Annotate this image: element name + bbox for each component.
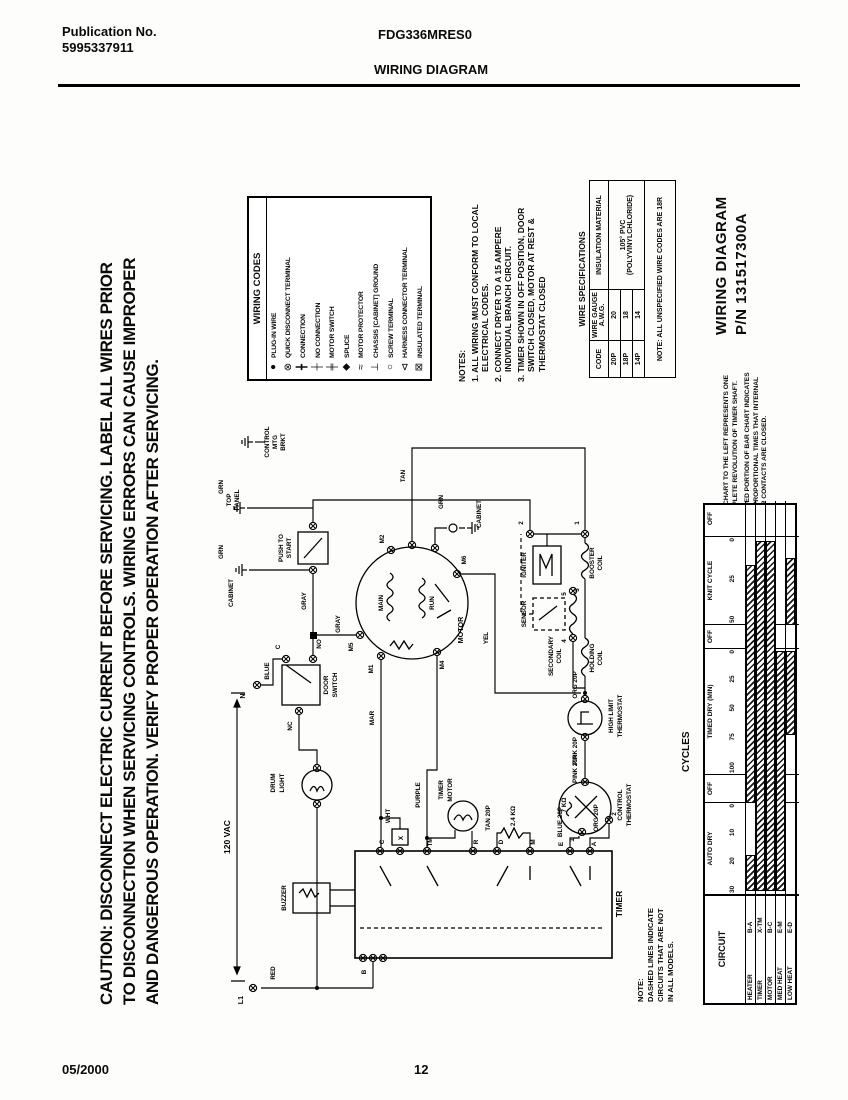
timer-terminal-label: M [530, 839, 537, 844]
model-number: FDG336MRES0 [378, 27, 472, 43]
sensor [533, 598, 565, 630]
motor-protector-icon: ≈ [357, 358, 367, 376]
run-winding-label: RUN [429, 596, 436, 610]
wire-blue20-label: BLUE 20P [557, 807, 564, 837]
timer-motor [448, 801, 478, 831]
diagram-part-number: WIRING DIAGRAM P/N 131517300A [712, 140, 765, 335]
wire-mar-label: MAR [369, 710, 376, 725]
wire-pink-label: PINK 20P [572, 755, 579, 783]
cycle-bar-segment [776, 651, 785, 891]
footer-page-number: 12 [414, 1062, 428, 1077]
drum-light-label: DRUM [270, 774, 277, 793]
col-gauge: WIRE GAUGE A.W.G. [590, 290, 609, 341]
dashed-wires [360, 534, 605, 928]
cycle-tick: 0 [729, 804, 736, 808]
bar-note-line: COMPLETE REVOLUTION OF TIMER SHAFT. [732, 376, 741, 521]
cycle-tick: 75 [729, 733, 736, 740]
drum-light-label: LIGHT [279, 773, 286, 792]
cycle-circuit-code: B-C [767, 922, 774, 933]
wire-specs-note: NOTE: ALL UNSPECIFIED WIRE CODES ARE 18R [645, 181, 676, 378]
legend-item: ≈MOTOR PROTECTOR [355, 198, 370, 379]
wire-specifications-title: WIRE SPECIFICATIONS [577, 180, 587, 378]
cycle-tick: 30 [729, 886, 736, 893]
cycle-tick: 25 [729, 675, 736, 682]
door-switch-label: SWITCH [332, 672, 339, 697]
holding-coil-label: COIL [597, 650, 604, 665]
timer-terminal-label: C [379, 839, 386, 844]
wire-red-label: RED [270, 966, 277, 980]
caution-line: TO DISCONNECTION WHEN SERVICING CONTROLS… [118, 330, 141, 1005]
timer-terminal-label: TM [427, 837, 434, 846]
bar-chart-note: BAR CHART TO THE LEFT REPRESENTS ONE COM… [723, 376, 797, 521]
cycle-ticks: 50250 [729, 538, 736, 623]
motor-label: MOTOR [456, 616, 465, 643]
caution-line: CAUTION: DISCONNECT ELECTRIC CURRENT BEF… [95, 330, 118, 1005]
legend-item-label: NO CONNECTION [315, 303, 322, 358]
wire-yel-label: YEL [483, 632, 490, 644]
wiring-diagram-page: Publication No. 5995337911 FDG336MRES0 W… [0, 0, 848, 1100]
cycle-tick: 0 [729, 538, 736, 542]
sensor-label: SENSOR [521, 600, 528, 627]
notes-block: NOTES: 1. ALL WIRING MUST CONFORM TO LOC… [457, 188, 585, 382]
timer-terminal-label: A [591, 841, 598, 846]
cycle-bar-segment [766, 541, 775, 891]
publication-label: Publication No. [62, 24, 157, 40]
cell-gauge: 14 [633, 290, 645, 341]
timer-terminal-label: R [473, 839, 480, 844]
timer-motor-label: MOTOR [447, 778, 454, 802]
buzzer [293, 883, 330, 913]
cycle-row: TIMERX-TM [755, 501, 765, 1003]
ctrl-terminal-2-label: 2 [611, 812, 618, 816]
valve-terminal-4-label: 4 [561, 639, 568, 643]
booster-coil-label: COIL [597, 555, 604, 570]
diagram-title-line: WIRING DIAGRAM [712, 140, 732, 335]
legend-item-label: QUICK DISCONNECT TERMINAL [285, 257, 292, 358]
cell-code: 20P [609, 341, 621, 378]
cycle-tick: 25 [729, 575, 736, 582]
insulated-terminal-icon: ⊠ [415, 358, 425, 376]
wire-specifications: WIRE SPECIFICATIONS CODE WIRE GAUGE A.W.… [577, 180, 712, 378]
col-insulation: INSULATION MATERIAL [590, 181, 609, 290]
wire-grn-label: GRN [438, 495, 445, 509]
door-switch-label: DOOR [323, 675, 330, 694]
valve-terminal-3-label: 3 [574, 588, 581, 592]
cycle-row: MOTORB-C [765, 501, 775, 1003]
terminal-c-label: C [275, 644, 282, 649]
main-winding-label: MAIN [378, 595, 385, 612]
cycle-ticks: 1007550250 [729, 650, 736, 773]
harness-connector-terminal-icon: ⊲ [401, 358, 411, 376]
note-item: 2. CONNECT DRYER TO A 15 AMPERE INDIVIDU… [493, 188, 514, 382]
supply-voltage-label: 120 VAC [222, 820, 232, 854]
top-panel-label: TOP [226, 494, 233, 507]
top-panel-label: PANEL [234, 489, 241, 510]
wires [247, 442, 609, 988]
legend-item-label: CHASSIS [CABINET] GROUND [373, 264, 380, 358]
cycle-bar-segment [746, 565, 755, 803]
footer-date: 05/2000 [62, 1062, 109, 1077]
notes-title: NOTES: [457, 188, 468, 382]
legend-item: ┼NO CONNECTION [311, 198, 326, 379]
cycle-circuit-name: TIMER [757, 980, 764, 1000]
cycle-bar-segment [756, 541, 765, 891]
note-item: 3. TIMER SHOWN IN OFF POSITION, DOOR SWI… [516, 188, 548, 382]
legend-item: ⊠INSULATED TERMINAL [413, 198, 428, 379]
terminal-n-label: N [238, 693, 247, 698]
timer-motor-label: TIMER [438, 780, 445, 800]
wire-grn-label: GRN [218, 480, 225, 494]
igniter-label: IGNITER [521, 552, 528, 578]
connection-icon: ╋ [298, 358, 308, 376]
terminal-nc-label: NC [287, 721, 294, 731]
cycle-circuit-code: B-A [747, 922, 754, 933]
legend-item-label: INSULATED TERMINAL [417, 286, 424, 358]
cell-gauge: 20 [609, 290, 621, 341]
wire-grn-label: GRN [218, 545, 225, 559]
timer-label: TIMER [614, 891, 624, 917]
no-connection-icon: ┼ [313, 358, 323, 376]
legend-item: ⊲HARNESS CONNECTOR TERMINAL [398, 198, 413, 379]
circuit-header: CIRCUIT [717, 901, 727, 997]
terminal-no-label: NO [316, 639, 323, 649]
wire-tan20-label: TAN 20P [485, 805, 492, 830]
valve-terminal-5-label: 5 [561, 592, 568, 596]
valve-terminal-1-label: 1 [574, 521, 581, 525]
col-code: CODE [590, 341, 609, 378]
wiring-codes-title: WIRING CODES [249, 198, 267, 379]
control-bracket-ground-icon [242, 436, 253, 448]
resistor-2-4k [501, 828, 526, 838]
secondary-coil-label: COIL [556, 648, 563, 663]
page-title: WIRING DIAGRAM [374, 62, 488, 78]
bar-note-line: THE PROPORTIONAL TIMES THAT INTERNAL [753, 376, 762, 521]
legend-item-label: MOTOR PROTECTOR [358, 291, 365, 358]
cycle-circuit-name: MED HEAT [777, 967, 784, 1000]
ctrl-terminal-1-label: 1 [569, 838, 576, 842]
wire-wht-label: WHT [385, 809, 392, 823]
note-item: 1. ALL WIRING MUST CONFORM TO LOCAL ELEC… [470, 188, 491, 382]
timer-terminal-label: D [498, 839, 505, 844]
vac-dimension [231, 693, 245, 981]
motor [356, 547, 468, 659]
cycle-tick: 20 [729, 857, 736, 864]
secondary-coil-label: SECONDARY [548, 635, 555, 676]
legend-item: ╪MOTOR SWITCH [325, 198, 340, 379]
cabinet-label: CABINET [476, 500, 483, 528]
bar-note-line: BAR CHART TO THE LEFT REPRESENTS ONE [723, 376, 732, 521]
wire-org20-label: ORG 20P [593, 804, 600, 831]
buzzer-label: BUZZER [281, 885, 288, 911]
wire-gray-label: GRAY [301, 591, 308, 609]
caution-line: AND DANGEROUS OPERATION. VERIFY PROPER O… [141, 330, 164, 1005]
drum-light [302, 770, 332, 800]
run-winding [419, 578, 425, 618]
legend-item: ●PLUG-IN WIRE [267, 198, 282, 379]
motor-switch-icon: ╪ [328, 358, 338, 376]
wire-org-label: ORG 20P [572, 671, 579, 698]
wire-tan-label: TAN [400, 469, 407, 482]
cabinet-ground-label: CABINET [228, 579, 235, 607]
motor-terminal-label: M4 [439, 660, 446, 669]
control-thermostat-label: THERMOSTAT [626, 783, 633, 826]
holding-coil-label: HOLDING [589, 643, 596, 672]
wire-blue-label: BLUE [264, 662, 271, 679]
push-to-start-label: PUSH TO [278, 534, 285, 562]
resistor-24k-label: 2.4 KΩ [510, 806, 517, 826]
diagram-pn-line: P/N 131517300A [732, 140, 752, 335]
high-limit-thermostat [568, 701, 602, 735]
legend-item-label: PLUG-IN WIRE [271, 313, 278, 358]
legend-item-label: SPLICE [344, 335, 351, 358]
wire-purple-label: PURPLE [415, 782, 422, 808]
bar-note-line: SHADED PORTION OF BAR CHART INDICATES [744, 376, 753, 521]
cycle-ticks: 3020100 [729, 804, 736, 893]
cycle-circuit-name: HEATER [747, 974, 754, 1000]
cabinet-ground-icon [236, 564, 247, 576]
schematic-labels: N L1 120 VAC RED BLUE GRN GRN GRN TOP PA… [218, 426, 633, 1004]
control-thermostat-label: CONTROL [617, 789, 624, 820]
cycles-chart: CIRCUIT AUTO DRY3020100OFFTIMED DRY (MIN… [703, 503, 797, 1005]
chassis-cabinet-ground-icon: ⊥ [371, 358, 381, 376]
wire-specifications-table: CODE WIRE GAUGE A.W.G. INSULATION MATERI… [589, 180, 676, 378]
high-limit-label: THERMOSTAT [617, 694, 624, 737]
motor-protector [390, 641, 413, 649]
cycle-tick: 50 [729, 616, 736, 623]
legend-item-label: MOTOR SWITCH [329, 307, 336, 358]
legend-item: ○SCREW TERMINAL [384, 198, 399, 379]
timer-terminal-label: E [558, 842, 565, 846]
plug-in-wire-icon: ● [269, 358, 279, 376]
quick-disconnect-terminal-icon: ⊗ [284, 358, 294, 376]
legend-item-label: SCREW TERMINAL [388, 298, 395, 358]
cycle-bar-segment [746, 855, 755, 891]
bar-note-line: TIMER CONTACTS ARE CLOSED. [761, 376, 770, 521]
timer [355, 851, 612, 958]
wiring-codes-legend: WIRING CODES ●PLUG-IN WIRE⊗QUICK DISCONN… [247, 196, 432, 381]
door-switch [282, 665, 320, 705]
legend-item-label: CONNECTION [300, 314, 307, 358]
splice-icon: ◆ [342, 358, 352, 376]
legend-item: ⊥CHASSIS [CABINET] GROUND [369, 198, 384, 379]
screw-terminal-icon: ○ [386, 358, 396, 376]
valve-terminal-2-label: 2 [518, 521, 525, 525]
cycle-tick: 50 [729, 704, 736, 711]
control-mtg-brkt-label: CONTROL [264, 426, 271, 457]
timer-terminal-label: X [398, 835, 405, 840]
motor-terminal-label: M6 [461, 555, 468, 564]
main-winding [387, 573, 393, 621]
cycle-circuit-name: MOTOR [767, 976, 774, 1000]
motor-terminal-label: M2 [379, 534, 386, 543]
secondary-coil [570, 594, 577, 634]
cycle-row: MED HEATE-M [775, 501, 785, 1003]
holding-coil [582, 638, 589, 676]
booster-coil [582, 543, 589, 579]
notes-items: 1. ALL WIRING MUST CONFORM TO LOCAL ELEC… [470, 188, 548, 382]
caution-text: CAUTION: DISCONNECT ELECTRIC CURRENT BEF… [95, 330, 180, 1005]
cycle-tick: 0 [729, 650, 736, 654]
legend-item: ╋CONNECTION [296, 198, 311, 379]
motor-terminal-label: M5 [348, 642, 355, 651]
screw-terminal [449, 524, 457, 532]
cell-code: 18P [621, 341, 633, 378]
cycle-tick: 10 [729, 829, 736, 836]
cycle-circuit-name: LOW HEAT [787, 966, 794, 1000]
timer-terminal-label: B [361, 969, 368, 974]
cell-insulation: 105° PVC (POLYVINYLCHLORIDE) [609, 181, 645, 290]
control-mtg-brkt-label: BRKT [280, 433, 287, 451]
legend-item-label: HARNESS CONNECTOR TERMINAL [402, 247, 409, 358]
legend-item: ⊗QUICK DISCONNECT TERMINAL [282, 198, 297, 379]
cycle-row: HEATERB-A [745, 501, 755, 1003]
cycle-tick: 100 [729, 762, 736, 773]
header-rule [58, 84, 800, 87]
publication-number: 5995337911 [62, 40, 134, 56]
cycle-circuit-code: X-TM [757, 917, 764, 933]
wire-gray-label: GRAY [335, 614, 342, 632]
cycle-circuit-code: E-D [787, 922, 794, 933]
cycle-bar-segment [786, 651, 795, 735]
control-mtg-brkt-label: MTG [272, 435, 279, 449]
cycle-bar-segment [786, 558, 795, 625]
cell-code: 14P [633, 341, 645, 378]
cycle-row: LOW HEATE-D [785, 501, 795, 1003]
legend-items: ●PLUG-IN WIRE⊗QUICK DISCONNECT TERMINAL╋… [267, 198, 428, 379]
legend-item: ◆SPLICE [340, 198, 355, 379]
wiring-schematic: N L1 120 VAC RED BLUE GRN GRN GRN TOP PA… [185, 388, 710, 1006]
cycle-circuit-code: E-M [777, 921, 784, 933]
terminal-l1-label: L1 [236, 996, 245, 1004]
booster-coil-label: BOOSTER [589, 547, 596, 579]
high-limit-label: HIGH LIMIT [608, 699, 615, 733]
push-to-start-label: START [286, 538, 293, 559]
cell-gauge: 18 [621, 290, 633, 341]
motor-terminal-label: M1 [368, 664, 375, 673]
